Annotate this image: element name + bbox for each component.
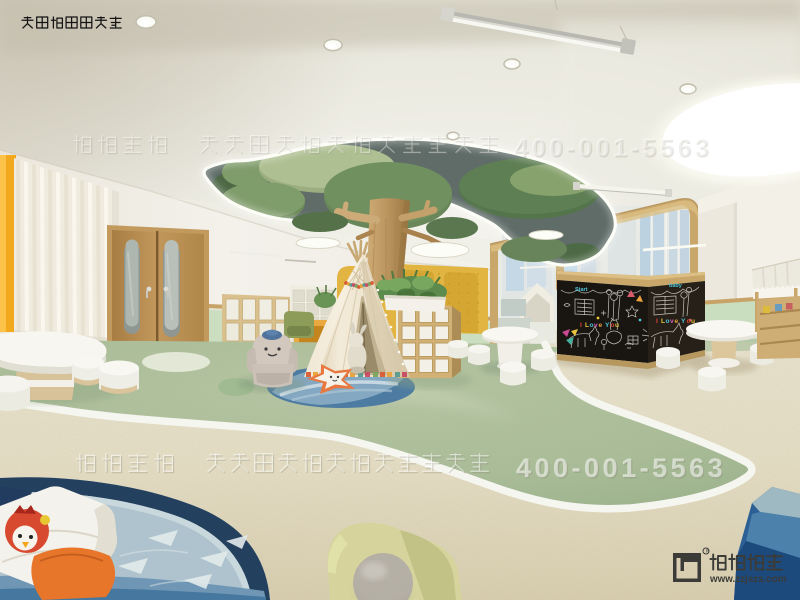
svg-text:Start: Start [575,287,588,293]
svg-text:400-001-5563: 400-001-5563 [514,134,712,162]
svg-text:u: u [615,322,619,329]
svg-text:Y: Y [681,318,686,325]
svg-text:o: o [611,322,615,329]
svg-text:e: e [675,318,679,325]
svg-text:I: I [656,318,658,325]
svg-text:o: o [666,318,670,325]
svg-text:v: v [594,322,598,329]
svg-text:o: o [687,318,691,325]
svg-text:I: I [580,322,582,329]
svg-text:e: e [599,322,603,329]
svg-text:Y: Y [605,322,610,329]
svg-text:o: o [590,322,594,329]
svg-text:v: v [670,318,674,325]
svg-text:baby: baby [669,283,683,289]
svg-text:400-001-5563: 400-001-5563 [516,453,726,483]
svg-text:www.zzjszs.com: www.zzjszs.com [709,574,787,585]
svg-text:L: L [661,318,665,325]
svg-text:L: L [585,322,589,329]
